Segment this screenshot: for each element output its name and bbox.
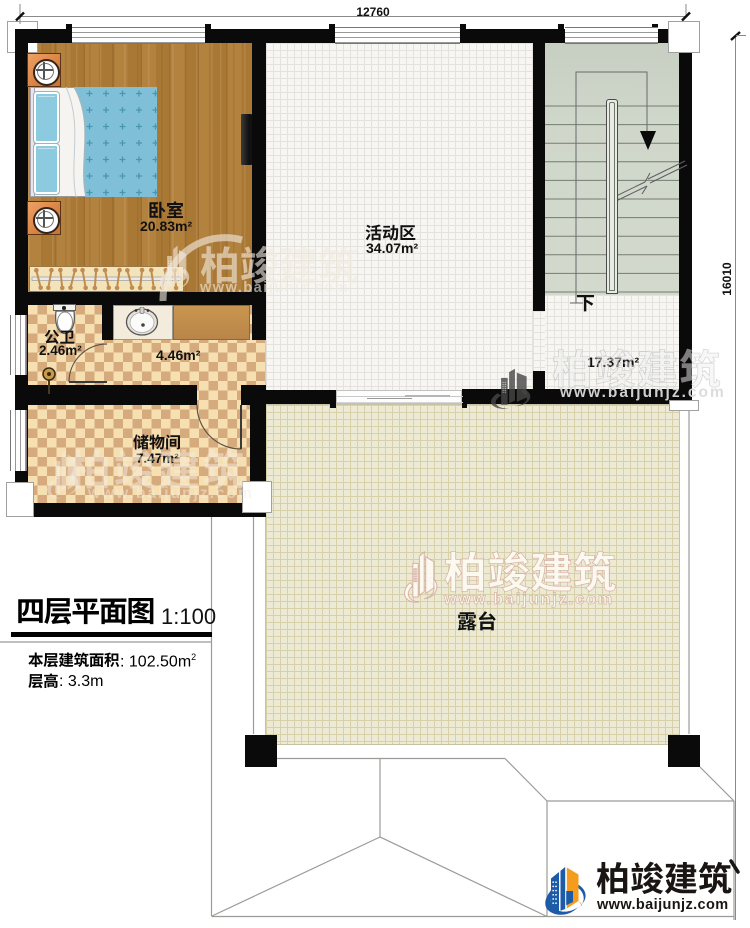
svg-text:www.baijunjz.com: www.baijunjz.com xyxy=(596,897,729,913)
